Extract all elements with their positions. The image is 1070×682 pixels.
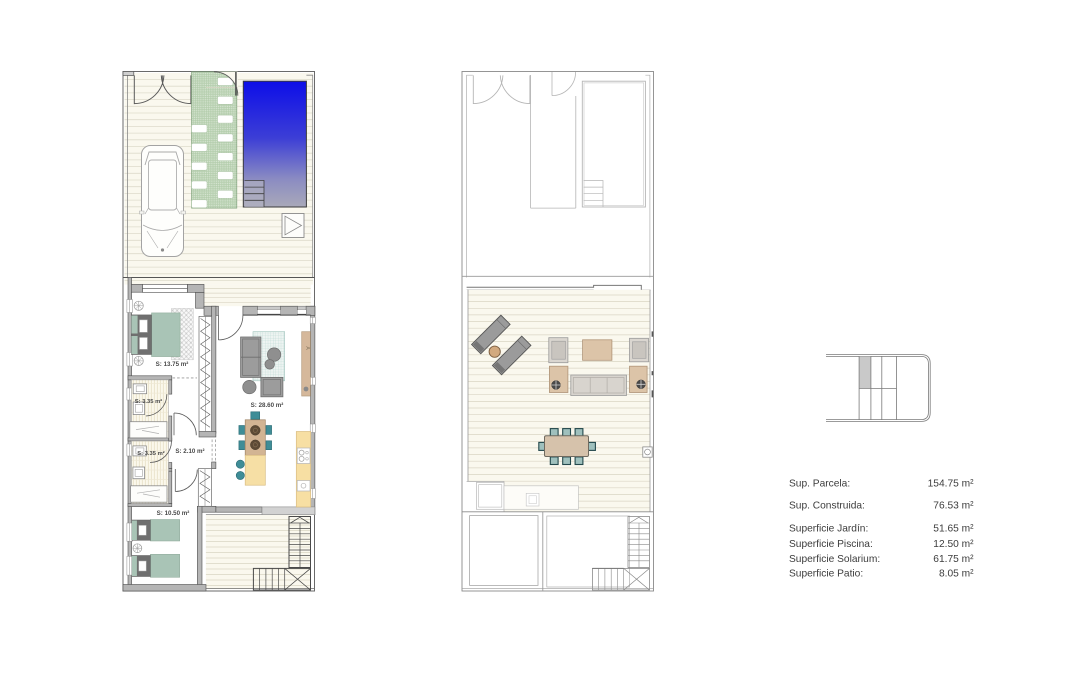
svg-text:Superficie Jardín:: Superficie Jardín: [789,524,868,535]
svg-text:S: 2.10 m²: S: 2.10 m² [175,448,204,455]
svg-text:S: 10.50 m²: S: 10.50 m² [157,510,190,517]
svg-text:S: 3.35 m²: S: 3.35 m² [135,398,162,405]
svg-text:61.75 m²: 61.75 m² [933,554,974,565]
svg-text:S: 28.60 m²: S: 28.60 m² [251,402,284,409]
svg-text:8.05 m²: 8.05 m² [939,569,974,580]
svg-text:51.65 m²: 51.65 m² [933,524,974,535]
svg-text:76.53 m²: 76.53 m² [933,501,974,512]
svg-text:154.75 m²: 154.75 m² [928,479,974,490]
svg-text:S: 3.35 m²: S: 3.35 m² [137,450,164,457]
svg-text:Sup. Construida:: Sup. Construida: [789,501,865,512]
svg-text:12.50 m²: 12.50 m² [933,539,974,550]
svg-text:Sup. Parcela:: Sup. Parcela: [789,479,850,490]
svg-text:Superficie Patio:: Superficie Patio: [789,569,863,580]
svg-text:Superficie Solarium:: Superficie Solarium: [789,554,880,565]
svg-text:S: 13.75 m²: S: 13.75 m² [156,361,189,368]
svg-text:Superficie Piscina:: Superficie Piscina: [789,539,873,550]
